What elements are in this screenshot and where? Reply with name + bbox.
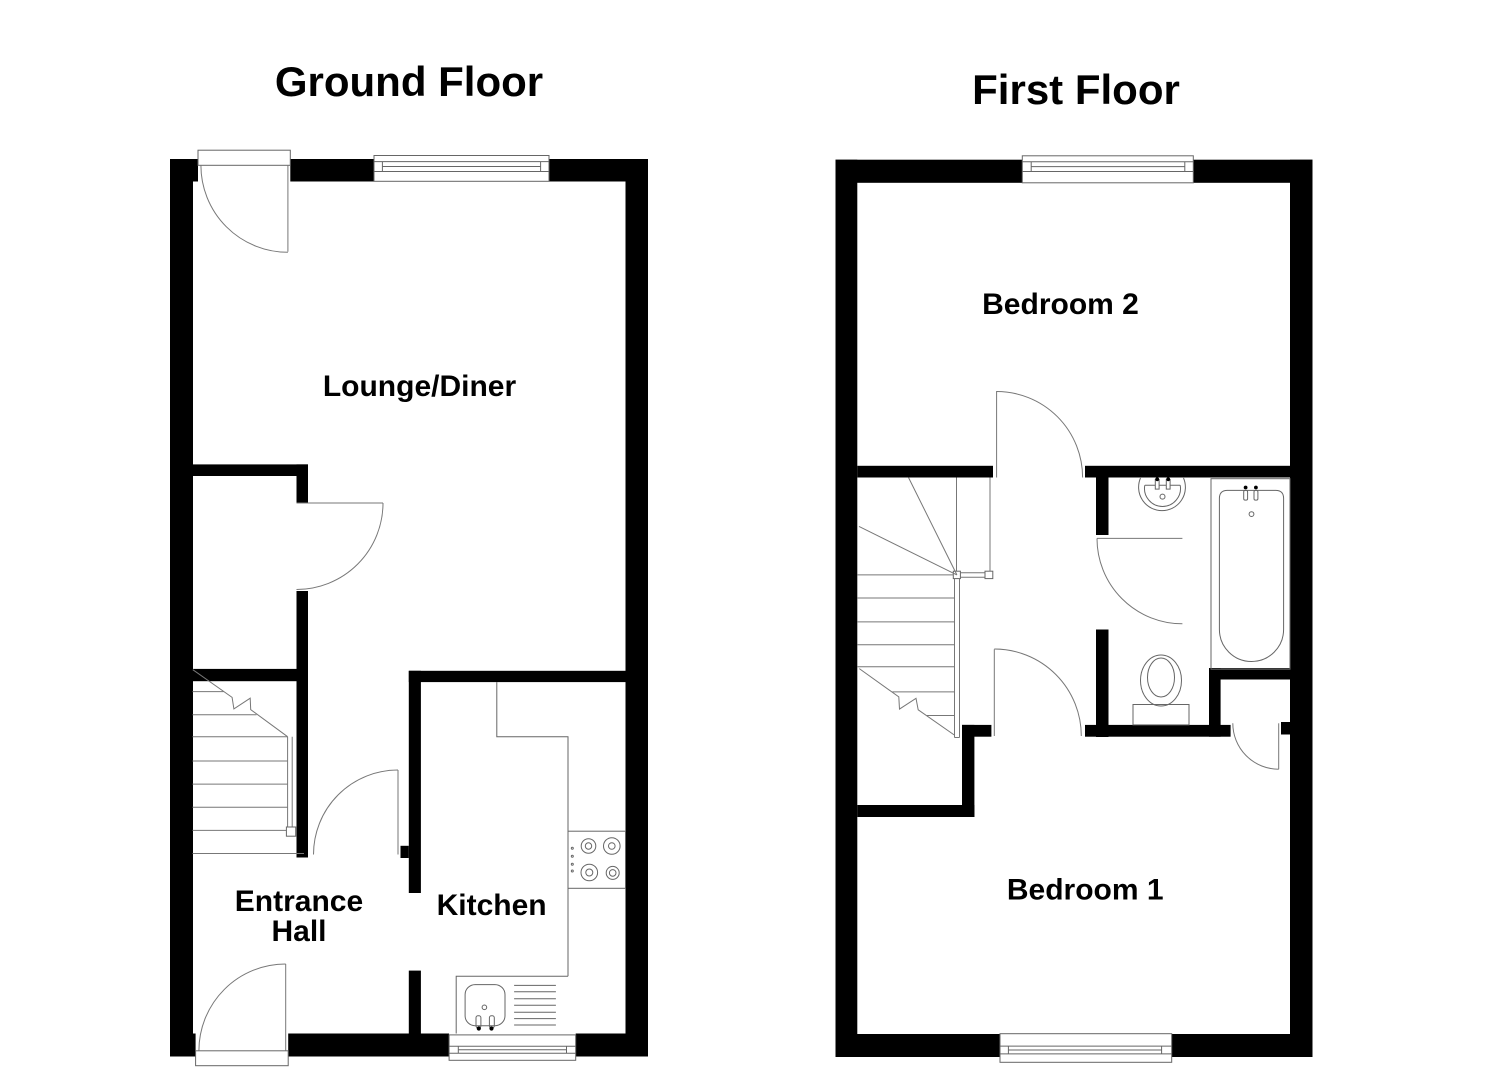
svg-text:Hall: Hall [271, 915, 326, 948]
svg-text:Lounge/Diner: Lounge/Diner [323, 370, 517, 403]
svg-text:First Floor: First Floor [972, 66, 1180, 113]
svg-text:Bedroom 2: Bedroom 2 [982, 288, 1139, 321]
svg-text:Ground Floor: Ground Floor [275, 58, 543, 105]
svg-text:Bedroom 1: Bedroom 1 [1007, 874, 1164, 907]
svg-text:Entrance: Entrance [235, 885, 363, 918]
svg-text:Kitchen: Kitchen [437, 889, 547, 922]
